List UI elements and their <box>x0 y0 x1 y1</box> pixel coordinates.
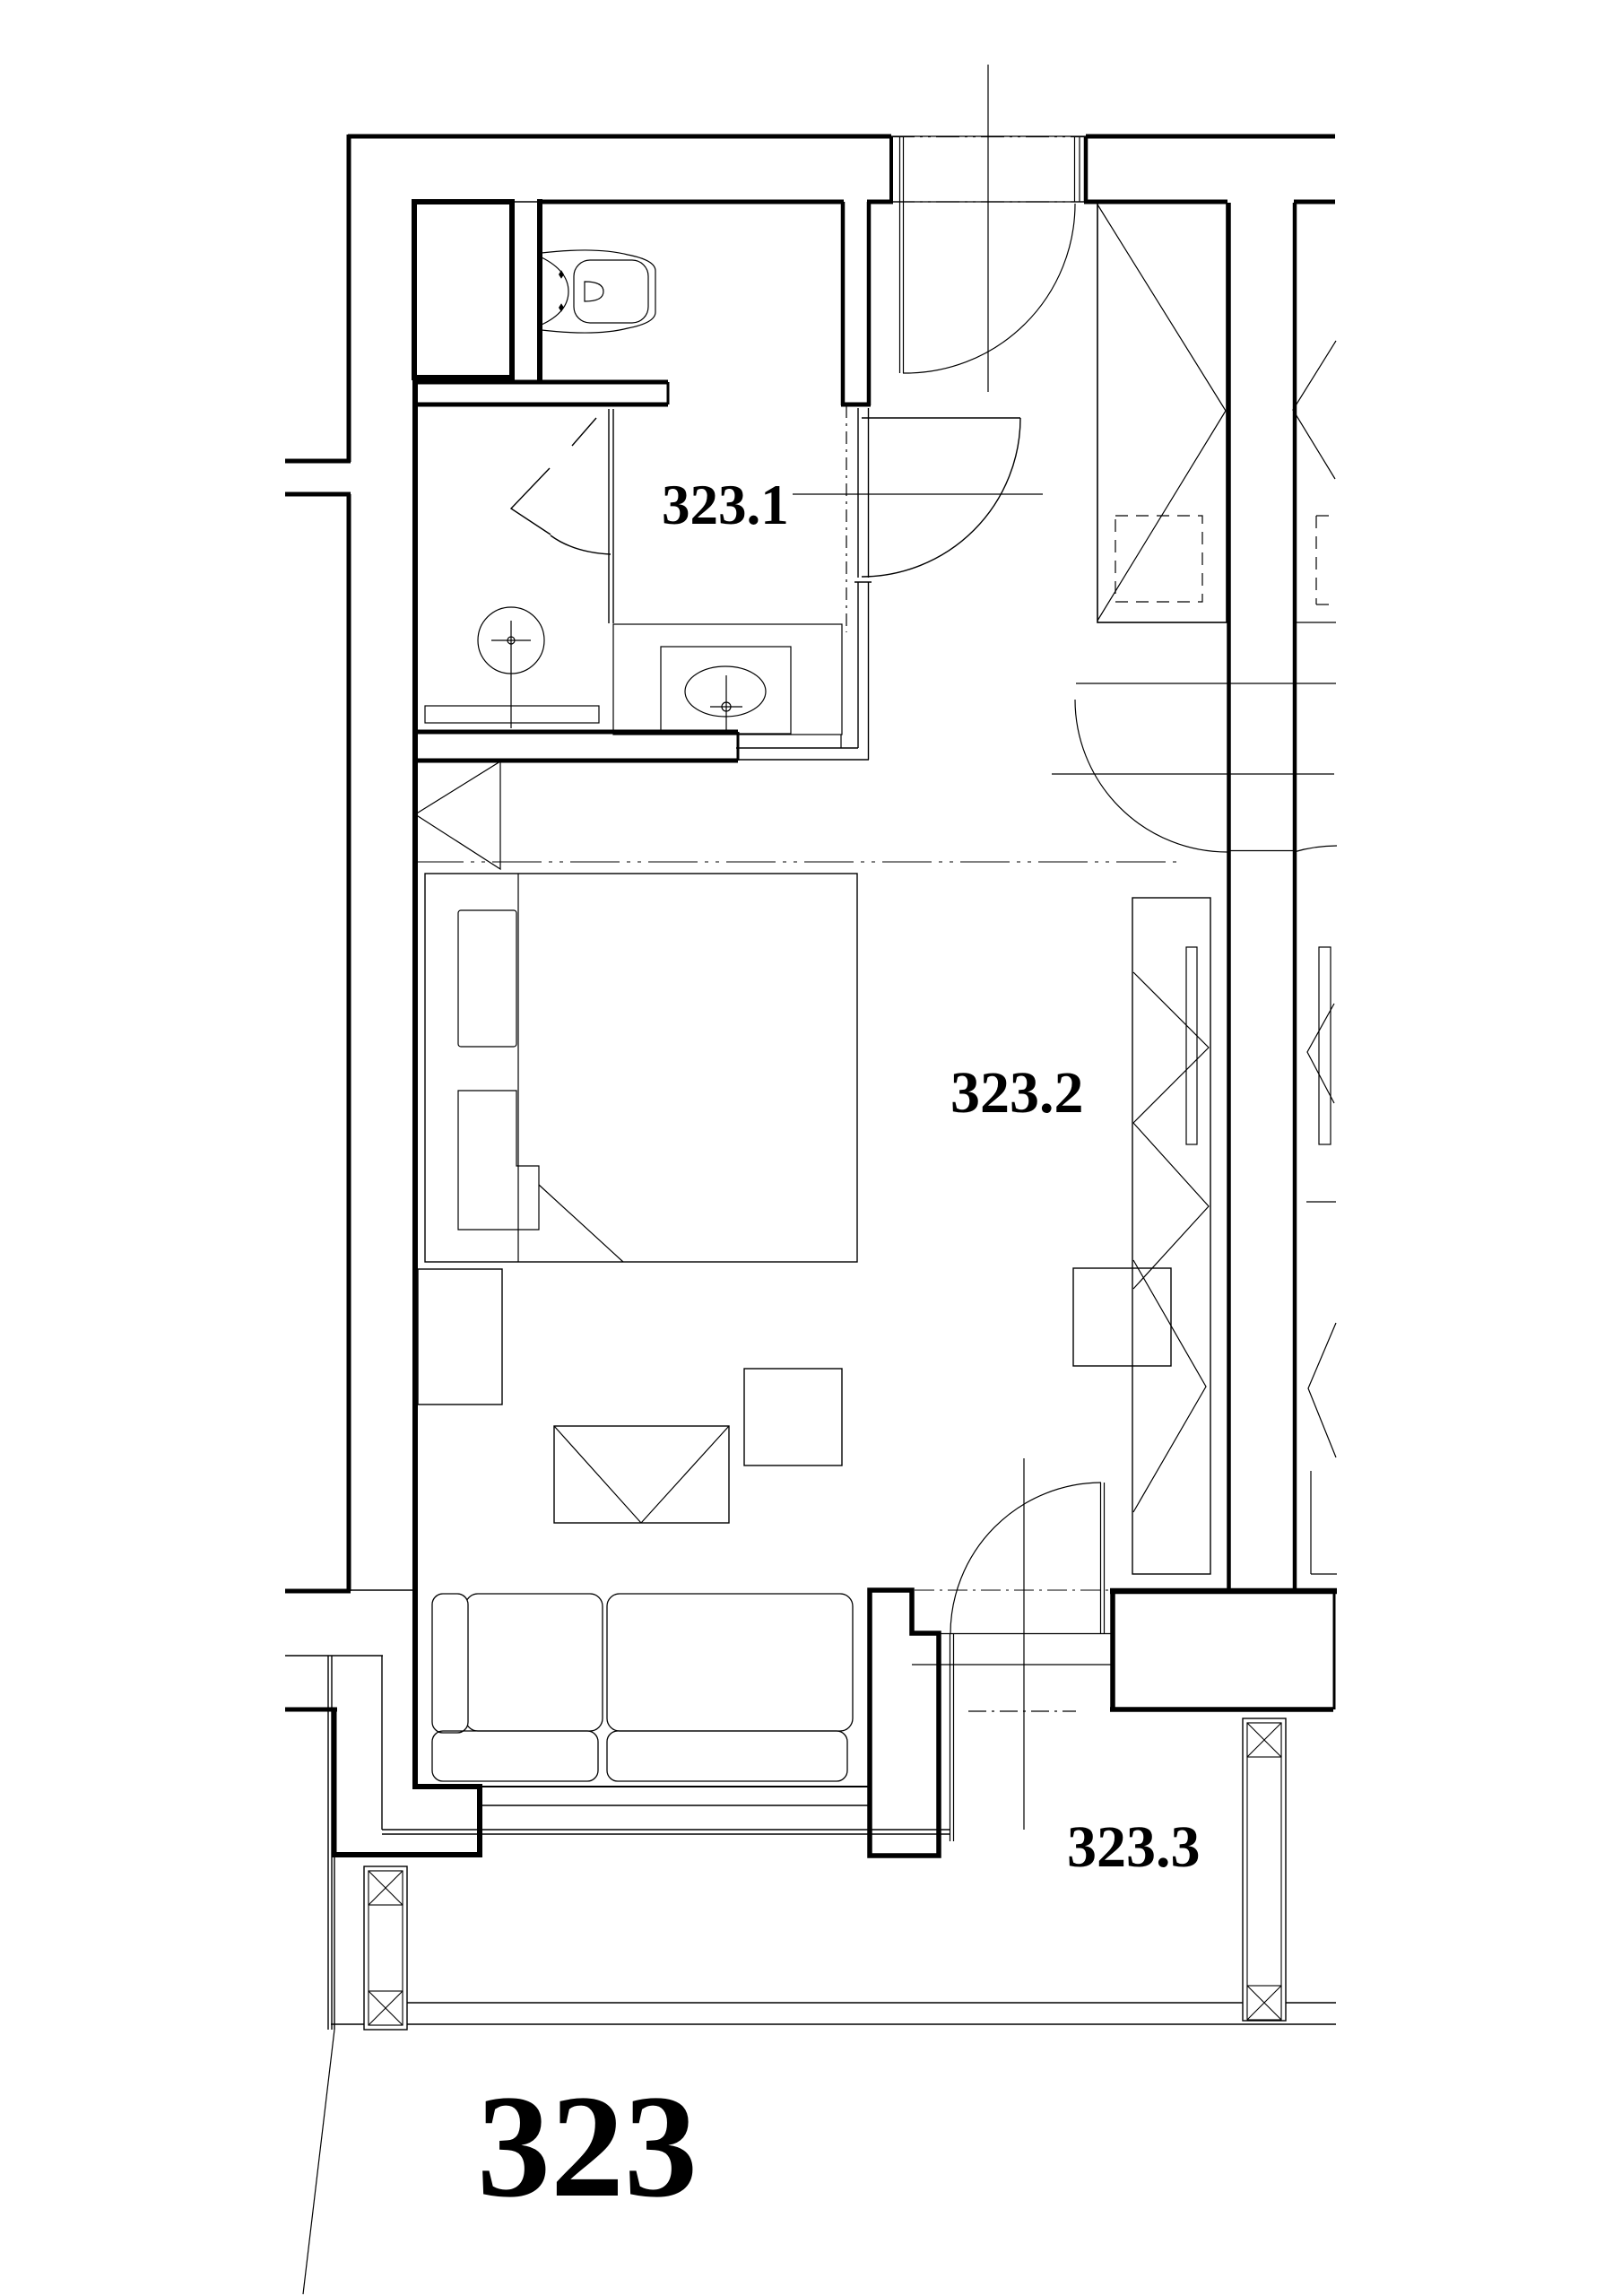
svg-text:323.3: 323.3 <box>1067 1814 1201 1880</box>
svg-text:323.2: 323.2 <box>950 1060 1084 1126</box>
svg-text:323: 323 <box>477 2066 698 2228</box>
svg-text:323.1: 323.1 <box>662 474 789 536</box>
